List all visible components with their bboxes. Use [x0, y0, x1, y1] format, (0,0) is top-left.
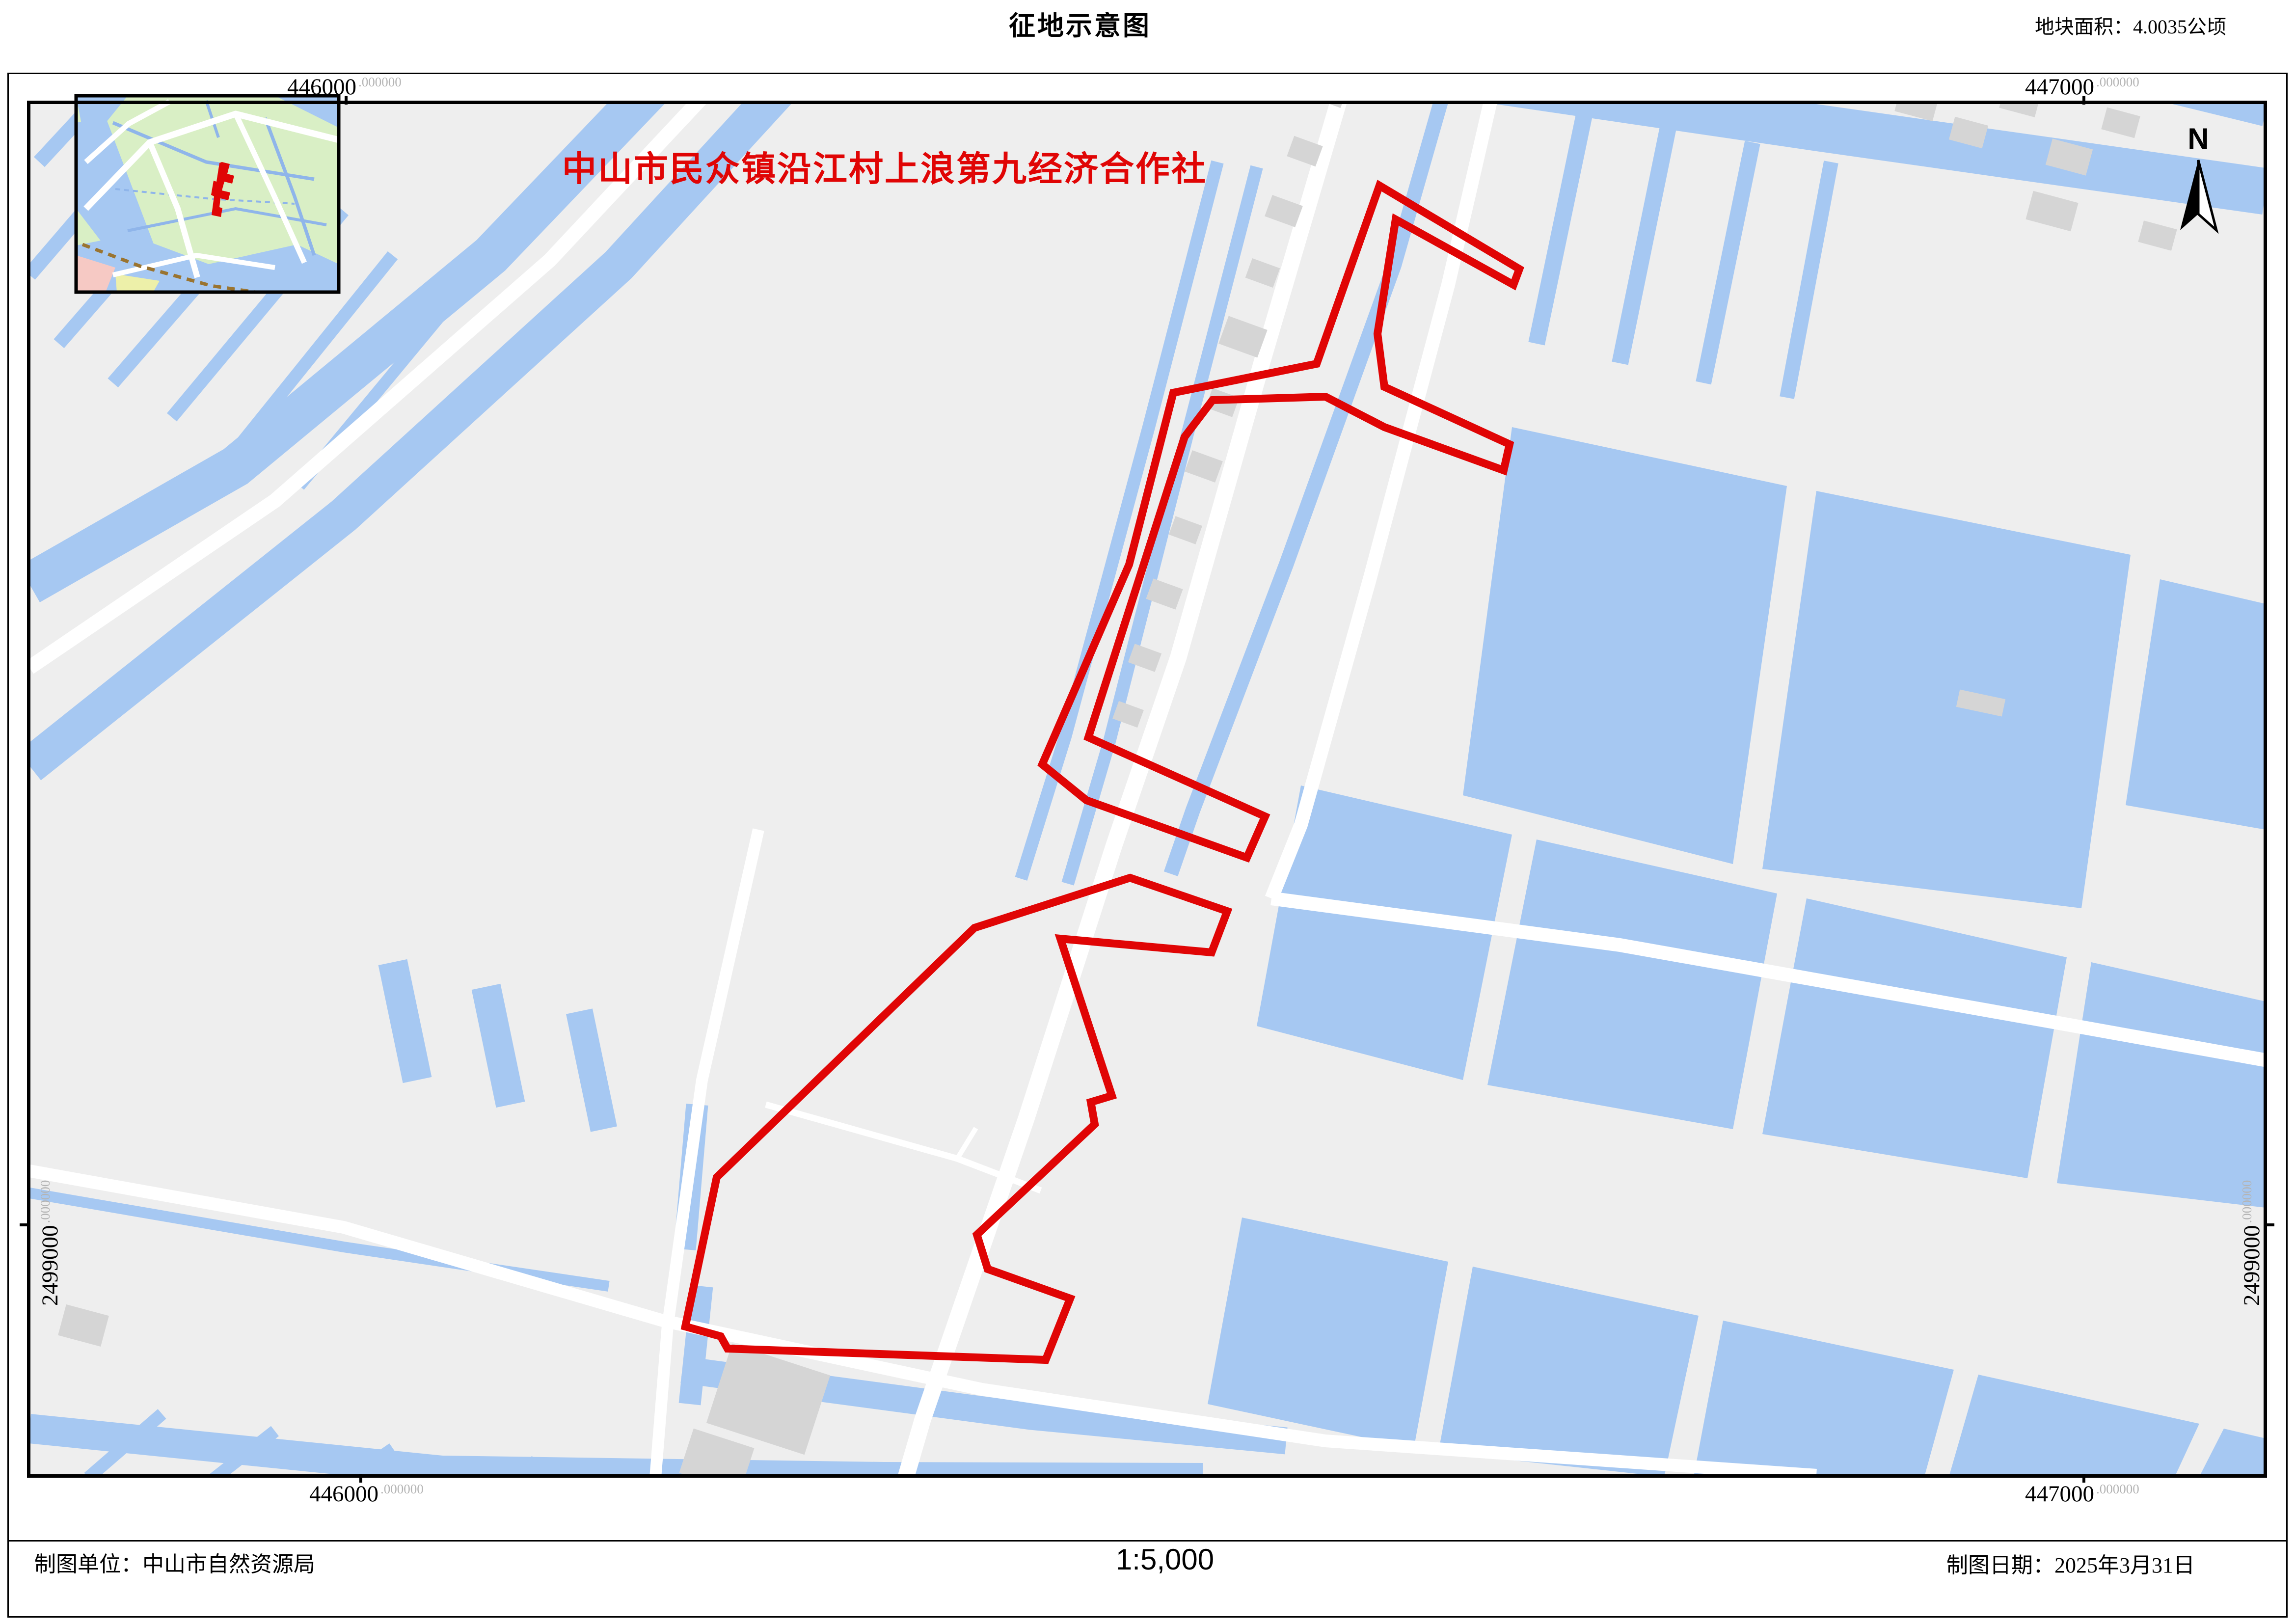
map-scale: 1:5,000	[1067, 1543, 1263, 1576]
map-sheet: { "header": { "title": "征地示意图", "area_no…	[0, 0, 2295, 1624]
inset-locator-map	[76, 96, 339, 292]
parcel-owner-label: 中山市民众镇沿江村上浪第九经济合作社	[562, 141, 1207, 191]
grid-coordinate-label: 446000.000000	[287, 74, 402, 100]
pond	[2057, 962, 2266, 1208]
page-title: 征地示意图	[0, 4, 2160, 43]
map-agency: 制图单位：中山市自然资源局	[34, 1546, 315, 1578]
grid-coordinate-label: 447000.000000	[2025, 74, 2139, 100]
map-layers	[27, 29, 2267, 1507]
grid-coordinate-label: 447000.000000	[2025, 1481, 2139, 1507]
grid-coordinate-label: 2499000.000000	[2239, 1180, 2265, 1306]
north-arrow: N	[2174, 124, 2223, 240]
pond	[1463, 427, 1787, 864]
north-letter: N	[2174, 124, 2223, 154]
grid-coordinate-label: 2499000.000000	[37, 1180, 63, 1306]
plot-area-note: 地块面积：4.0035公顷	[2035, 11, 2226, 39]
north-arrow-icon	[2174, 154, 2223, 238]
pond	[1762, 491, 2131, 908]
map-date: 制图日期：2025年3月31日	[1946, 1547, 2195, 1579]
map-canvas	[0, 0, 2295, 1624]
footer-divider	[7, 1540, 2288, 1542]
building	[1343, 45, 1377, 73]
grid-coordinate-label: 446000.000000	[309, 1481, 424, 1507]
building	[1307, 74, 1349, 108]
